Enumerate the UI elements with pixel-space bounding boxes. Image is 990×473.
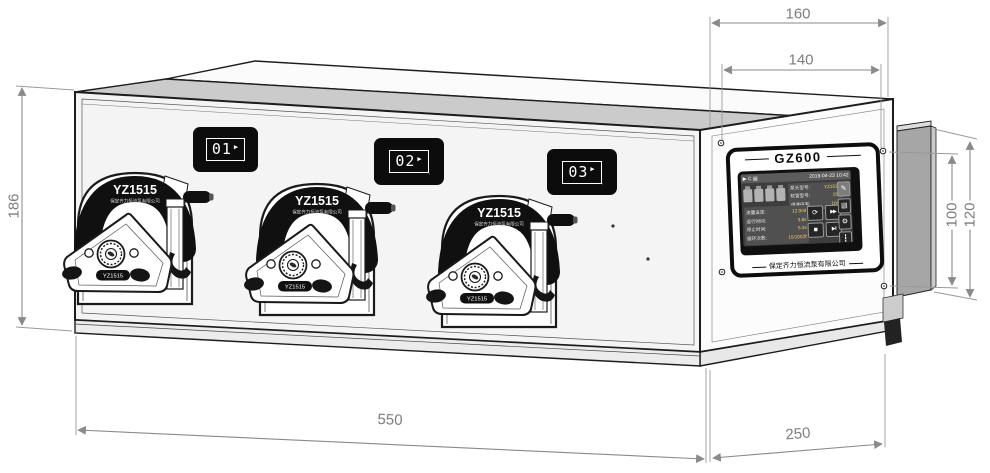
cycle-button-icon: ⟳ (807, 205, 824, 221)
dim-label-160: 160 (785, 7, 810, 22)
bottle-icon (754, 186, 764, 202)
channel-number: 03 (568, 163, 588, 181)
param-label: 运行时间: (746, 218, 766, 225)
param-label: 循环次数: (747, 236, 767, 243)
control-panel: GZ600 ▶ C ▤ 2019-04-23 10:42 泵头型号:YZ1515… (725, 142, 884, 278)
technical-drawing-canvas: YZ1515 保定齐力恒流泵有限公司 (0, 0, 990, 473)
title-rule-left (745, 158, 769, 160)
touchscreen-bezel: ▶ C ▤ 2019-04-23 10:42 泵头型号:YZ1515 软管型号:… (737, 167, 862, 256)
param-label: 停止时间: (747, 227, 767, 234)
bottle-icons (743, 185, 786, 203)
status-datetime: 2019-04-23 10:42 (809, 172, 849, 180)
param-value: 3.8s (798, 217, 807, 223)
company-rule-right (849, 262, 863, 264)
touchscreen: ▶ C ▤ 2019-04-23 10:42 泵头型号:YZ1515 软管型号:… (741, 170, 854, 246)
run-params-box: 流量设定:12.0ml 运行时间:3.8s 停止时间:5.3s 循环次数:15/… (744, 205, 809, 246)
channel-arrow-icon: ▶ (234, 144, 239, 151)
channel-arrow-icon: ▶ (417, 156, 422, 163)
channel-arrow-icon: ▶ (590, 166, 595, 173)
gear-icon: ⚙ (838, 214, 852, 230)
title-rule-right (826, 154, 860, 157)
bottle-icon (743, 186, 753, 202)
dim-label-550: 550 (377, 412, 403, 428)
info-label: 泵头型号: (790, 185, 810, 192)
status-icons: ▶ C ▤ (743, 175, 758, 182)
prime-pen-icon: ✎ (837, 181, 851, 197)
channel-display-2: 02▶ , (374, 138, 444, 185)
channel-display-3: 03▶ , (547, 149, 617, 195)
screen-side-buttons: ✎ ▤ ⚙ ┇ (837, 181, 853, 246)
channel-number: 01 (212, 140, 232, 158)
param-value: 5.3s (798, 225, 807, 231)
dim-label-120: 120 (963, 200, 978, 229)
dim-label-100: 100 (945, 200, 960, 229)
list-icon: ▤ (838, 198, 852, 214)
info-label: 软管型号: (790, 193, 810, 200)
channel-tick-mark: , (242, 157, 244, 163)
panel-title: GZ600 (774, 149, 822, 166)
param-value: 15/100次 (788, 234, 807, 241)
channel-tick-mark: , (601, 180, 603, 186)
stop-button-icon: ■ (808, 222, 825, 238)
dim-label-140: 140 (788, 53, 813, 68)
dim-label-250: 250 (785, 425, 811, 442)
rubber-foot (884, 318, 902, 346)
channel-tick-mark: , (428, 170, 430, 176)
side-cover-plate (897, 126, 931, 297)
company-rule-left (752, 266, 766, 268)
bottle-icon (765, 185, 775, 201)
channel-display-1: 01▶ , (193, 127, 258, 172)
tune-sliders-icon: ┇ (839, 231, 853, 247)
screen-button-grid: ⟳ ▶▶ ■ ▶‖ (807, 205, 842, 238)
param-value: 12.0ml (792, 208, 806, 215)
bottle-icon (776, 185, 786, 201)
channel-number: 02 (395, 152, 415, 170)
dim-label-186: 186 (7, 191, 22, 220)
param-label: 流量设定: (746, 209, 766, 216)
